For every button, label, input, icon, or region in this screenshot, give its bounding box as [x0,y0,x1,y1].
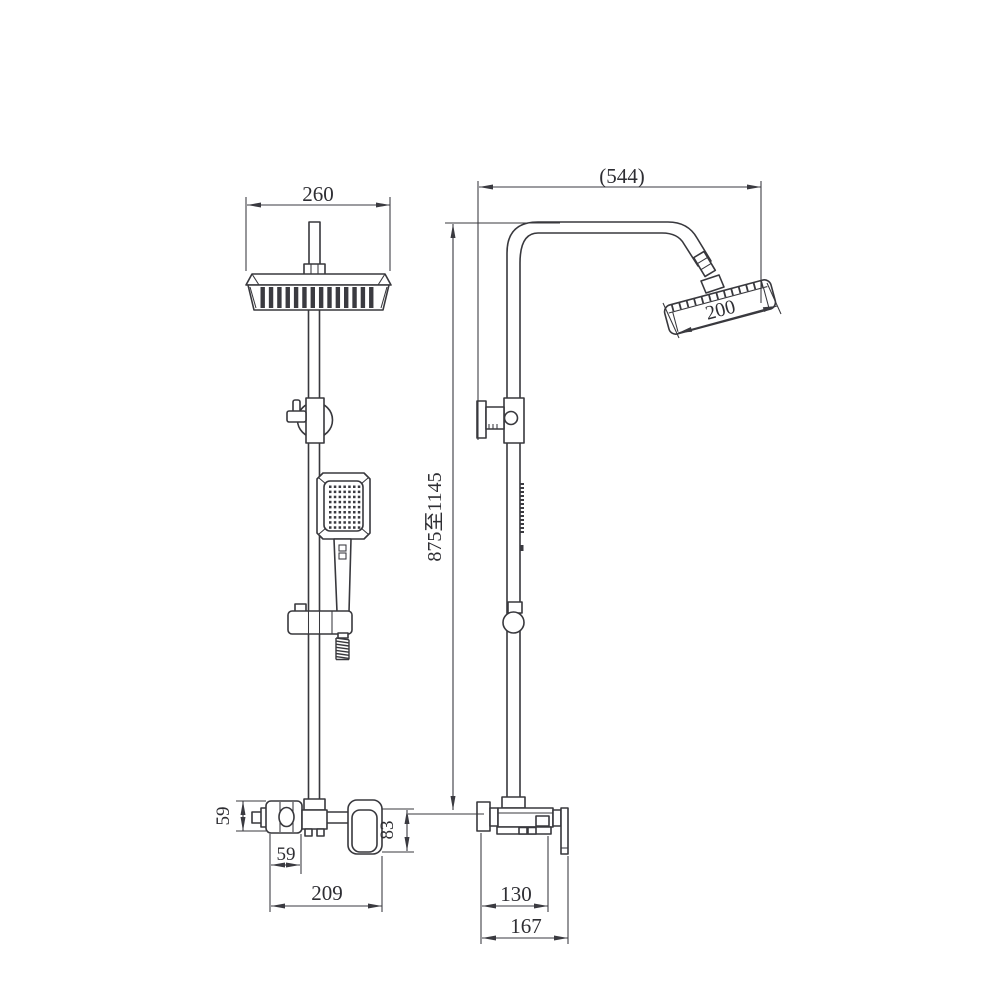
dim-handle-plate-width: 59 [277,844,296,865]
hand-shower [317,473,370,612]
riser-stop [520,545,524,551]
dim-handle-plate-height: 59 [213,807,234,826]
dim-head-width: 260 [302,182,334,206]
dim-valve-body-height: 83 [377,821,398,840]
front-riser-pipe [309,310,320,800]
shower-system-drawing: 260 (544) 875至1145 200 59 59 83 209 130 … [0,0,1000,1000]
dim-valve-body-depth: 130 [500,882,532,906]
front-valve [252,799,382,854]
hose-spring [336,638,349,660]
dim-valve-overall-width: 209 [311,881,343,905]
side-slider-knob [503,602,524,633]
side-wall-bracket [477,398,524,443]
dim-arm-reach: (544) [599,164,645,188]
front-wall-bracket [287,398,333,443]
front-shower-head [246,274,391,310]
front-view [246,222,391,854]
technical-drawing-page: 260 (544) 875至1145 200 59 59 83 209 130 … [0,0,1000,1000]
front-top-pipe [304,222,325,275]
dim-valve-overall-depth: 167 [510,914,542,938]
dim-riser-height-range: 875至1145 [424,472,446,561]
side-valve [477,797,568,854]
